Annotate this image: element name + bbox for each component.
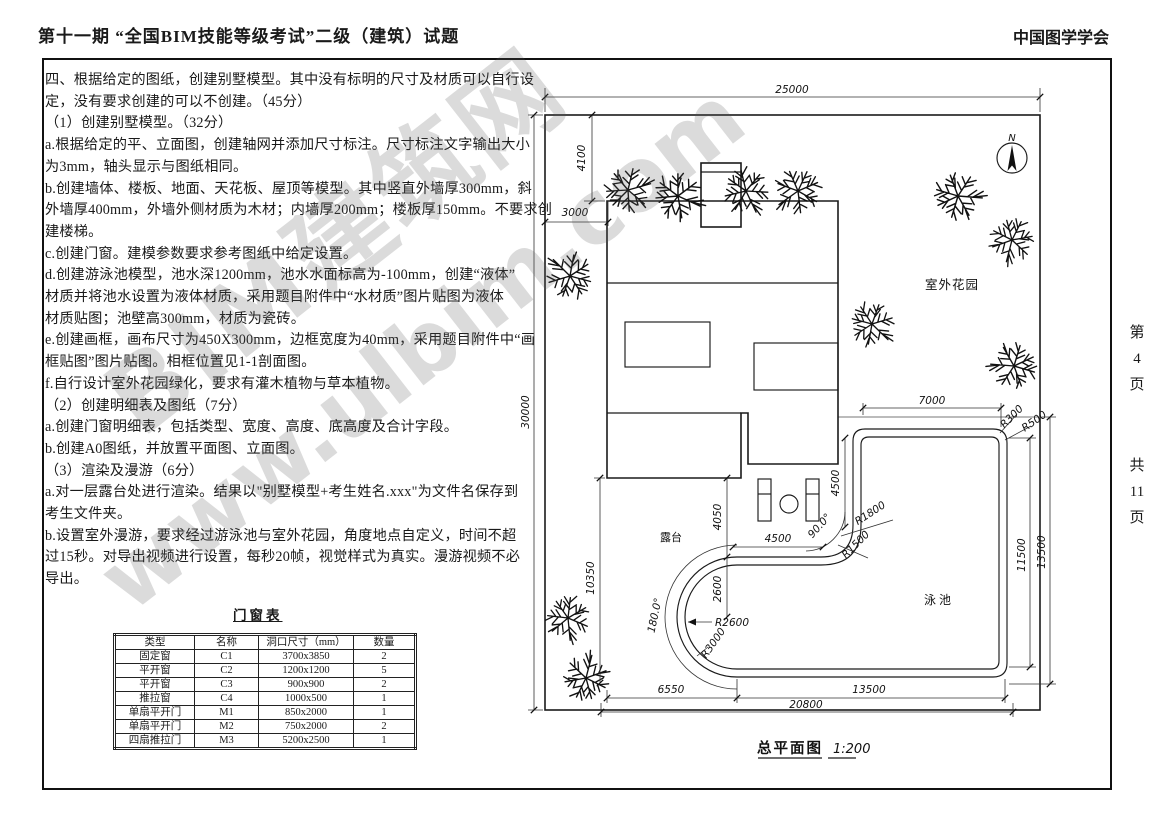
col-header-type: 类型 — [115, 635, 195, 650]
table-row: 单扇平开门 M1 850x2000 1 — [115, 706, 416, 720]
terrace-furniture — [758, 479, 819, 521]
cell-qty: 2 — [354, 720, 416, 734]
north-arrow-icon: N — [997, 133, 1027, 173]
cell-name: M3 — [195, 734, 259, 749]
question-line: 为3mm，轴头显示与图纸相同。 — [45, 157, 535, 179]
table-row: 四扇推拉门 M3 5200x2500 1 — [115, 734, 416, 749]
cell-size: 3700x3850 — [259, 650, 354, 664]
question-line: a.根据给定的平、立面图，创建轴网并添加尺寸标注。尺寸标注文字输出大小 — [45, 135, 535, 157]
north-label: N — [1008, 133, 1016, 144]
question-line: b.设置室外漫游，要求经过游泳池与室外花园，角度地点自定义，时间不超 — [45, 526, 535, 548]
cell-qty: 1 — [354, 692, 416, 706]
col-header-name: 名称 — [195, 635, 259, 650]
table-title: 门窗表 — [233, 604, 283, 624]
cell-type: 单扇平开门 — [115, 720, 195, 734]
dim-left-offset: 3000 — [562, 207, 589, 219]
question-line: b.创建A0图纸，并放置平面图、立面图。 — [45, 439, 535, 461]
question-line: 建楼梯。 — [45, 222, 535, 244]
cell-type: 推拉窗 — [115, 692, 195, 706]
page-number-current: 第 4 页 — [1120, 320, 1154, 398]
dim-h4500: 4500 — [765, 533, 792, 545]
question-line: 考生文件夹。 — [45, 504, 535, 526]
cell-name: C2 — [195, 664, 259, 678]
terrace-table — [780, 495, 798, 513]
question-line: c.创建门窗。建模参数要求参考图纸中给定设置。 — [45, 244, 535, 266]
question-line: 定，没有要求创建的可以不创建。（45分） — [45, 92, 535, 114]
question-line: d.创建游泳池模型，池水深1200mm，池水水面标高为-100mm，创建“液体” — [45, 265, 535, 287]
col-header-qty: 数量 — [354, 635, 416, 650]
table-row: 单扇平开门 M2 750x2000 2 — [115, 720, 416, 734]
cell-size: 900x900 — [259, 678, 354, 692]
cell-type: 单扇平开门 — [115, 706, 195, 720]
dim-top-offset: 4100 — [576, 144, 588, 171]
cell-name: M2 — [195, 720, 259, 734]
dim-v4050: 4050 — [712, 503, 724, 530]
dim-right-11500: 11500 — [1016, 538, 1028, 572]
cell-size: 750x2000 — [259, 720, 354, 734]
page-char: 第 — [1120, 320, 1154, 346]
organization-name: 中国图学学会 — [1013, 24, 1109, 48]
question-line: 导出。 — [45, 569, 535, 591]
cell-qty: 2 — [354, 650, 416, 664]
question-line: e.创建画框，画布尺寸为450X300mm，边框宽度为40mm，采用题目附件中“… — [45, 330, 535, 352]
lounge-chair — [806, 479, 819, 521]
plan-title: 总平面图 — [757, 739, 823, 757]
cell-name: C1 — [195, 650, 259, 664]
dim-r1500: R1500 — [840, 528, 873, 561]
question-line: （1）创建别墅模型。（32分） — [45, 113, 535, 135]
cell-size: 850x2000 — [259, 706, 354, 720]
cell-name: C3 — [195, 678, 259, 692]
dim-right-13500: 13500 — [1036, 535, 1048, 569]
exam-title: 第十一期 “全国BIM技能等级考试”二级（建筑）试题 — [38, 22, 459, 47]
question-line: 框贴图”图片贴图。相框位置见1-1剖面图。 — [45, 352, 535, 374]
question-line: 四、根据给定的图纸，创建别墅模型。其中没有标明的尺寸及材质可以自行设 — [45, 70, 535, 92]
question-line: b.创建墙体、楼板、地面、天花板、屋顶等模型。其中竖直外墙厚300mm，斜 — [45, 179, 535, 201]
cell-type: 四扇推拉门 — [115, 734, 195, 749]
dim-bottom-6550: 6550 — [658, 684, 685, 696]
cell-type: 平开窗 — [115, 664, 195, 678]
label-terrace: 露台 — [660, 530, 682, 544]
page-char: 页 — [1120, 372, 1154, 398]
page-char: 共 — [1120, 453, 1154, 479]
cell-name: M1 — [195, 706, 259, 720]
building-outline — [607, 163, 838, 478]
table-row: 推拉窗 C4 1000x500 1 — [115, 692, 416, 706]
question-line: 过15秒。对导出视频进行设置，每秒20帧，视觉样式为真实。漫游视频不必 — [45, 547, 535, 569]
site-plan-drawing: N 25000 30000 4100 3000 10350 7000 R300 … — [520, 70, 1120, 782]
cell-size: 1200x1200 — [259, 664, 354, 678]
dim-bottom-13500: 13500 — [852, 684, 886, 696]
question-line: （3）渲染及漫游（6分） — [45, 461, 535, 483]
trees — [538, 162, 1044, 710]
cell-qty: 5 — [354, 664, 416, 678]
page-number-total: 共 11 页 — [1120, 453, 1154, 531]
label-pool: 泳池 — [924, 593, 954, 607]
cell-type: 固定窗 — [115, 650, 195, 664]
question-line: 材质贴图；池壁高300mm，材质为瓷砖。 — [45, 309, 535, 331]
question-line: 材质并将池水设置为液体材质，采用题目附件中“水材质”图片贴图为液体 — [45, 287, 535, 309]
cell-qty: 1 — [354, 734, 416, 749]
dim-v2600: 2600 — [712, 575, 724, 602]
cell-qty: 1 — [354, 706, 416, 720]
page-char: 页 — [1120, 505, 1154, 531]
plan-scale: 1:200 — [833, 742, 870, 757]
page-char: 4 — [1120, 346, 1154, 372]
table-row: 平开窗 C3 900x900 2 — [115, 678, 416, 692]
dim-angle90: 90.0° — [806, 511, 834, 540]
window-door-table: 类型 名称 洞口尺寸（mm） 数量 固定窗 C1 3700x3850 2 平开窗… — [113, 633, 417, 750]
table-header-row: 类型 名称 洞口尺寸（mm） 数量 — [115, 635, 416, 650]
label-garden: 室外花园 — [925, 277, 979, 292]
page-char: 11 — [1120, 479, 1154, 505]
dim-angle180: 180.0° — [646, 597, 665, 634]
skylight-left — [625, 322, 710, 367]
cell-size: 1000x500 — [259, 692, 354, 706]
dim-v4500: 4500 — [830, 469, 842, 496]
question-line: a.对一层露台处进行渲染。结果以"别墅模型+考生姓名.xxx"为文件名保存到 — [45, 482, 535, 504]
cell-qty: 2 — [354, 678, 416, 692]
skylight-right — [754, 343, 838, 390]
cell-name: C4 — [195, 692, 259, 706]
dim-r3000: R3000 — [699, 626, 729, 661]
question-line: a.创建门窗明细表，包括类型、宽度、高度、底高度及合计字段。 — [45, 417, 535, 439]
cell-size: 5200x2500 — [259, 734, 354, 749]
dim-pool-top: 7000 — [919, 395, 946, 407]
col-header-size: 洞口尺寸（mm） — [259, 635, 354, 650]
dim-site-width: 25000 — [775, 84, 809, 96]
table-row: 平开窗 C2 1200x1200 5 — [115, 664, 416, 678]
table-row: 固定窗 C1 3700x3850 2 — [115, 650, 416, 664]
dim-bottom-total: 20800 — [789, 699, 823, 711]
lounge-chair — [758, 479, 771, 521]
question-line: f.自行设计室外花园绿化，要求有灌木植物与草本植物。 — [45, 374, 535, 396]
question-text: 四、根据给定的图纸，创建别墅模型。其中没有标明的尺寸及材质可以自行设 定，没有要… — [45, 70, 535, 591]
dim-left-lower: 10350 — [585, 561, 597, 595]
question-line: （2）创建明细表及图纸（7分） — [45, 396, 535, 418]
question-line: 外墙厚400mm，外墙外侧材质为木材；内墙厚200mm；楼板厚150mm。不要求… — [45, 200, 535, 222]
cell-type: 平开窗 — [115, 678, 195, 692]
